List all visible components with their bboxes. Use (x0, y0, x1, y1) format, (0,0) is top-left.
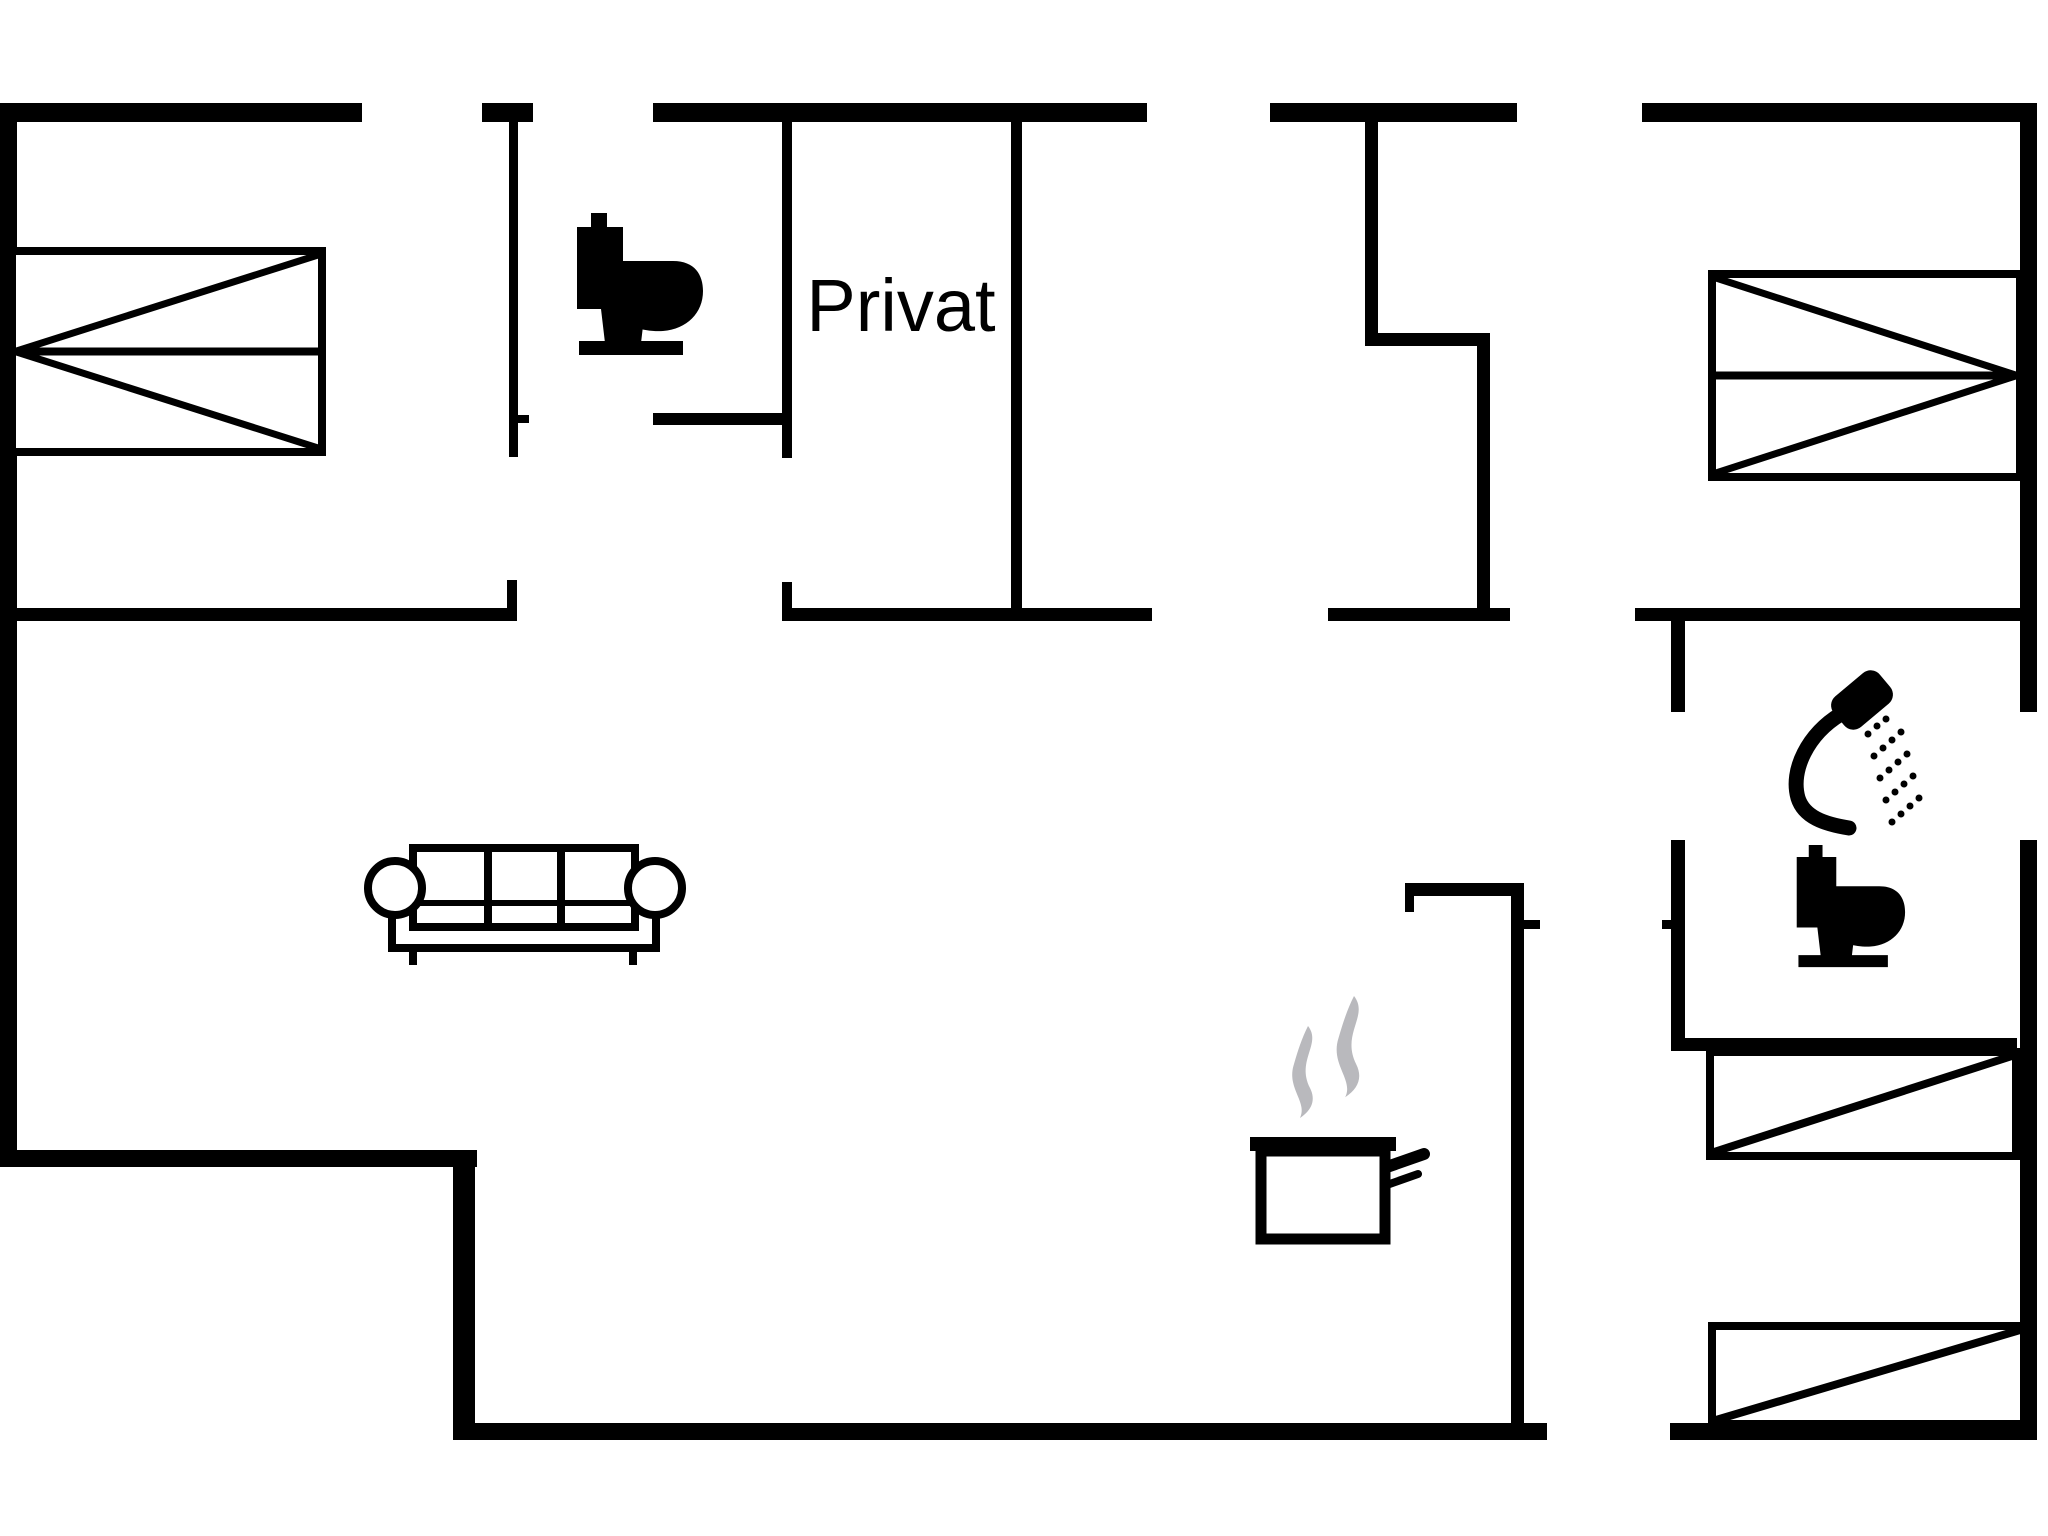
double-bed-top-right (1712, 274, 2020, 477)
shower-spray-dot (1874, 723, 1881, 730)
wc-bottom-wall (653, 413, 787, 425)
single-bed-bottom-right-lower (1712, 1326, 2024, 1424)
shower-spray-dot (1886, 767, 1893, 774)
steam-shape (1337, 996, 1360, 1097)
toilet-shape (1797, 845, 1905, 967)
shower-handle (1796, 714, 1849, 828)
toilet-icon-wc (577, 213, 703, 355)
top-wall-seg-1 (0, 103, 362, 122)
steam-wisp-left (1292, 1026, 1313, 1118)
floor-plan-svg: Privat (0, 0, 2048, 1536)
bottom-left-step-horizontal (0, 1150, 477, 1167)
shower-spray-dot (1883, 716, 1890, 723)
stair-wall-vertical-1 (1365, 122, 1378, 338)
shower-spray-dot (1916, 795, 1923, 802)
door-tick-kitchen (1524, 920, 1540, 929)
privat-left-wall (782, 122, 792, 458)
kitchen-wall-stub (1405, 896, 1414, 912)
shower-spray-dot (1865, 731, 1872, 738)
shower-spray-dot (1895, 759, 1902, 766)
stair-wall-horizontal (1365, 333, 1484, 346)
shower-spray-dot (1889, 737, 1896, 744)
pot-body (1261, 1151, 1385, 1239)
floor-plan-shapes (0, 103, 2037, 1440)
shower-spray-dot (1877, 775, 1884, 782)
bottom-left-step-vertical (453, 1150, 475, 1440)
top-wall-seg-3 (1270, 103, 1517, 122)
mid-wall-seg-d (1635, 608, 2025, 621)
stair-wall-vertical-2 (1477, 333, 1490, 621)
floor-plan: Privat (0, 0, 2048, 1536)
double-bed-top-left (12, 251, 322, 452)
shower-spray-dot (1892, 789, 1899, 796)
kitchen-wall-horizontal (1405, 883, 1524, 896)
bath-left-wall-lower (1671, 840, 1685, 1043)
shower-spray-dot (1901, 781, 1908, 788)
shower-spray-dot (1898, 729, 1905, 736)
steam-wisp-right (1337, 996, 1360, 1097)
door-tick-bath (1662, 920, 1678, 929)
sofa (368, 848, 682, 965)
shower-spray-dot (1880, 745, 1887, 752)
shower-spray-dot (1907, 803, 1914, 810)
shower-spray-dot (1889, 819, 1896, 826)
sofa-back (413, 848, 635, 927)
mid-wall-seg-a (0, 608, 517, 621)
privat-right-wall (1011, 122, 1022, 621)
sofa-armrest (628, 861, 682, 915)
shower-spray-dot (1871, 753, 1878, 760)
top-wall-seg-4 (1642, 103, 2037, 122)
bath-left-wall-upper (1671, 621, 1685, 712)
cooking-pot-icon (1250, 1137, 1424, 1239)
top-wall-cap (482, 103, 533, 122)
room-label-privat: Privat (806, 264, 996, 347)
shower-spray-dot (1910, 773, 1917, 780)
wc-left-wall (509, 118, 518, 457)
shower-spray-dot (1898, 811, 1905, 818)
top-wall-seg-2 (653, 103, 1147, 122)
shower-spray-dot (1904, 751, 1911, 758)
kitchen-wall-vertical (1511, 883, 1524, 1423)
steam-shape (1292, 1026, 1313, 1118)
door-tick-wc (513, 415, 529, 423)
pot-rim (1250, 1137, 1396, 1151)
shower-icon (1796, 665, 1922, 828)
toilet-shape (577, 213, 703, 355)
toilet-icon-bath (1797, 845, 1905, 967)
bottom-wall-seg-1 (453, 1423, 1547, 1440)
single-bed-bottom-right-upper (1710, 1052, 2016, 1156)
shower-spray-dot (1883, 797, 1890, 804)
sofa-armrest (368, 861, 422, 915)
mid-wall-seg-b (782, 608, 1152, 621)
